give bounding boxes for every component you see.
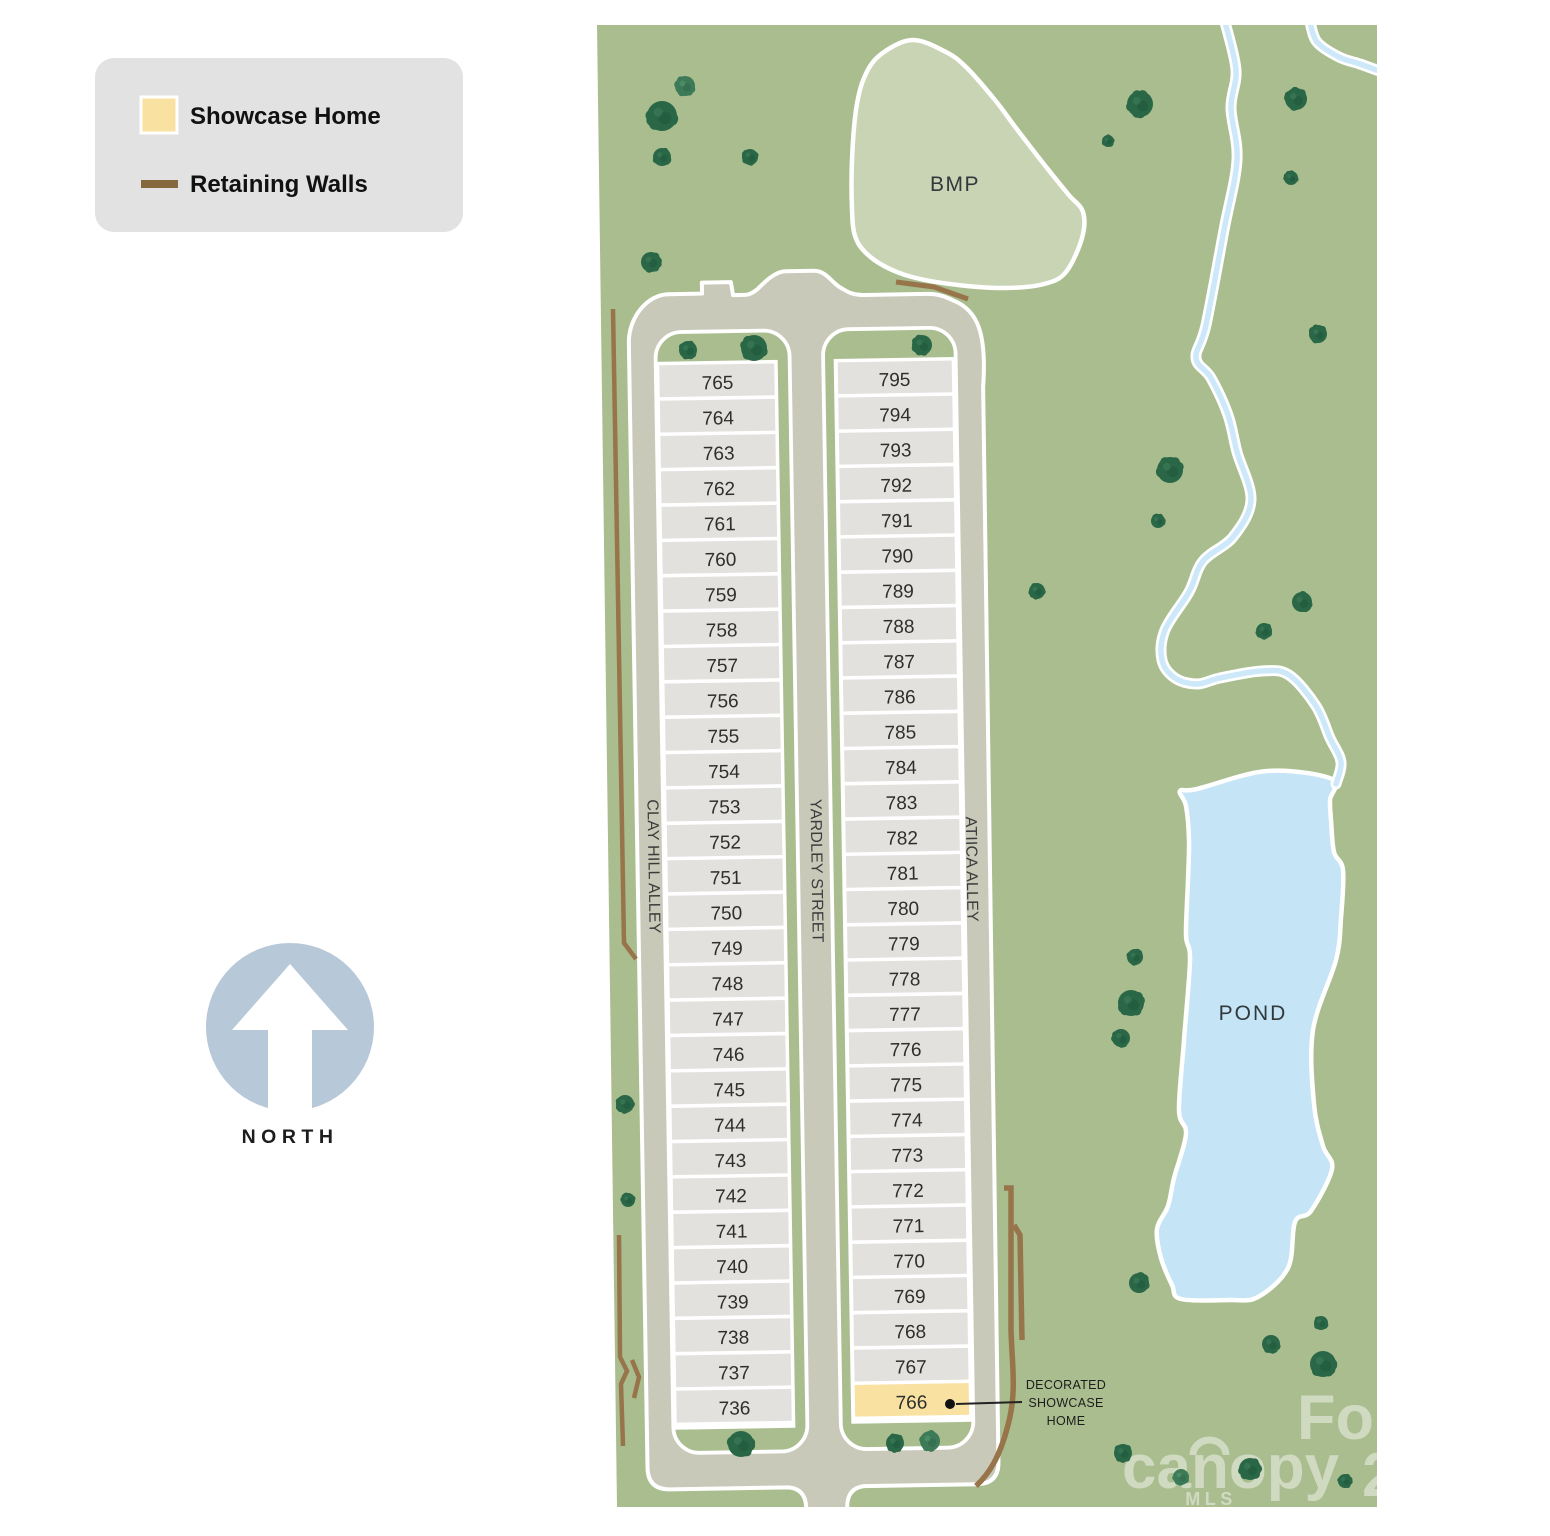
svg-text:738: 738 <box>717 1328 749 1350</box>
svg-text:784: 784 <box>885 758 917 780</box>
svg-text:767: 767 <box>895 1357 927 1379</box>
svg-text:YARDLEY STREET: YARDLEY STREET <box>806 799 825 943</box>
svg-text:746: 746 <box>713 1045 745 1067</box>
svg-text:780: 780 <box>887 899 919 921</box>
svg-text:Showcase Home: Showcase Home <box>190 103 381 130</box>
svg-text:NORTH: NORTH <box>242 1126 339 1148</box>
svg-text:765: 765 <box>702 373 734 395</box>
svg-text:772: 772 <box>892 1181 924 1203</box>
svg-text:2: 2 <box>1362 1441 1396 1510</box>
svg-text:MLS: MLS <box>1185 1489 1237 1509</box>
svg-text:777: 777 <box>889 1004 921 1026</box>
svg-text:747: 747 <box>712 1009 744 1031</box>
svg-text:793: 793 <box>880 440 912 462</box>
svg-text:Retaining Walls: Retaining Walls <box>190 171 368 198</box>
svg-text:766: 766 <box>895 1392 927 1414</box>
svg-text:761: 761 <box>704 514 736 536</box>
svg-text:ATIICA ALLEY: ATIICA ALLEY <box>962 816 981 922</box>
svg-text:788: 788 <box>883 617 915 639</box>
svg-text:789: 789 <box>882 581 914 603</box>
svg-text:786: 786 <box>884 687 916 709</box>
svg-text:764: 764 <box>702 408 734 430</box>
svg-text:745: 745 <box>713 1080 745 1102</box>
svg-text:BMP: BMP <box>930 173 980 196</box>
svg-text:760: 760 <box>704 550 736 572</box>
svg-text:739: 739 <box>717 1292 749 1314</box>
svg-text:790: 790 <box>881 546 913 568</box>
svg-text:795: 795 <box>878 370 910 392</box>
svg-text:781: 781 <box>887 864 919 886</box>
svg-text:743: 743 <box>714 1151 746 1173</box>
svg-text:768: 768 <box>894 1322 926 1344</box>
svg-text:770: 770 <box>893 1251 925 1273</box>
svg-text:779: 779 <box>888 934 920 956</box>
svg-text:756: 756 <box>707 691 739 713</box>
svg-text:737: 737 <box>718 1363 750 1385</box>
svg-text:758: 758 <box>706 620 738 642</box>
svg-text:754: 754 <box>708 762 740 784</box>
svg-text:749: 749 <box>711 939 743 961</box>
svg-text:787: 787 <box>883 652 915 674</box>
svg-text:750: 750 <box>710 903 742 925</box>
svg-text:785: 785 <box>884 722 916 744</box>
svg-text:773: 773 <box>891 1146 923 1168</box>
svg-text:757: 757 <box>706 656 738 678</box>
svg-text:736: 736 <box>719 1398 751 1420</box>
svg-text:753: 753 <box>709 797 741 819</box>
svg-text:776: 776 <box>890 1040 922 1062</box>
svg-text:POND: POND <box>1219 1002 1288 1025</box>
svg-text:782: 782 <box>886 828 918 850</box>
svg-text:759: 759 <box>705 585 737 607</box>
svg-text:763: 763 <box>703 444 735 466</box>
svg-text:774: 774 <box>891 1110 923 1132</box>
svg-text:741: 741 <box>716 1222 748 1244</box>
svg-text:792: 792 <box>880 476 912 498</box>
svg-text:CLAY HILL ALLEY: CLAY HILL ALLEY <box>643 799 662 934</box>
svg-text:775: 775 <box>890 1075 922 1097</box>
svg-text:SHOWCASE: SHOWCASE <box>1028 1396 1103 1410</box>
svg-text:769: 769 <box>894 1287 926 1309</box>
svg-text:755: 755 <box>707 726 739 748</box>
svg-text:752: 752 <box>709 832 741 854</box>
svg-text:HOME: HOME <box>1047 1414 1086 1428</box>
svg-text:778: 778 <box>888 969 920 991</box>
svg-text:762: 762 <box>703 479 735 501</box>
svg-text:751: 751 <box>710 868 742 890</box>
svg-text:744: 744 <box>714 1115 746 1137</box>
svg-text:742: 742 <box>715 1186 747 1208</box>
svg-text:DECORATED: DECORATED <box>1026 1378 1106 1392</box>
svg-text:740: 740 <box>716 1257 748 1279</box>
svg-text:748: 748 <box>711 974 743 996</box>
svg-text:794: 794 <box>879 405 911 427</box>
svg-text:783: 783 <box>886 793 918 815</box>
svg-text:791: 791 <box>881 511 913 533</box>
svg-text:771: 771 <box>893 1216 925 1238</box>
